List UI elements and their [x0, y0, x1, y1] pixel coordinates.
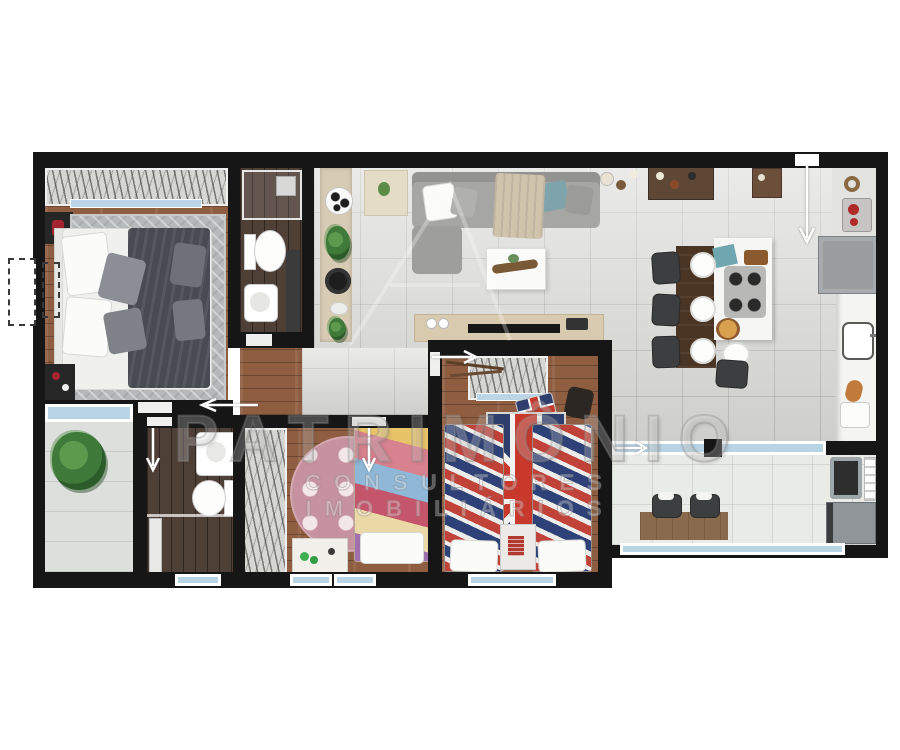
dining-chair-1 [651, 251, 681, 285]
window-boys [468, 574, 556, 586]
balcony-fern-plant [52, 432, 106, 490]
bed-pillow-gray-3 [169, 242, 207, 288]
window-girls-1 [290, 574, 332, 586]
wall-exterior-left [33, 152, 45, 588]
bench-white-decor [62, 384, 69, 391]
glassware-decor-3 [630, 170, 638, 178]
bathroom-top-vanity [286, 250, 300, 338]
door-arrow-entrance [798, 166, 816, 250]
sink-top-basin [250, 292, 270, 312]
wall-bedroom-bath-divider [228, 152, 240, 348]
floor-plan-canvas: PATRIMÔNIO CONSULTORES IMOBILIÁRIOS [0, 0, 900, 750]
girls-pillow [360, 532, 424, 564]
sideboard-decor-1 [656, 172, 664, 180]
coffee-machine-red-top [848, 204, 859, 215]
wall-exterior-top [33, 152, 888, 168]
watermark-logo-lines [330, 175, 550, 355]
watermark-line2: CONSULTORES IMOBILIÁRIOS [200, 470, 720, 522]
toy-green-1 [300, 552, 309, 561]
sofa-pillow-gray-2 [564, 184, 594, 215]
place-setting-1 [690, 252, 716, 278]
shower-column [149, 518, 162, 574]
toy-green-2 [310, 556, 318, 564]
bar-cart-decor [758, 174, 765, 181]
shower-head [276, 176, 296, 196]
sideboard-decor-2 [670, 180, 679, 189]
wall-bath-living-divider [302, 152, 314, 348]
window-girls-2 [334, 574, 376, 586]
ac-unit-dashed-outline-outer [8, 258, 36, 326]
fridge [818, 236, 878, 294]
pizza [716, 318, 740, 340]
tv-console-decor [566, 318, 588, 330]
wreath-decor [844, 176, 860, 192]
coffee-machine-red-base [850, 218, 858, 226]
cutting-board [744, 250, 768, 265]
watermark-line1: PATRIMÔNIO [150, 400, 770, 476]
boys-pillow-right [537, 539, 586, 573]
wall-service-right-stub [826, 441, 878, 455]
master-wardrobe-glass-door [70, 199, 202, 208]
window-service-bottom [620, 543, 845, 555]
toilet-top [254, 230, 286, 272]
window-bath-bottom [175, 574, 221, 586]
kitchen-sink [842, 322, 874, 360]
cooktop [724, 266, 766, 318]
ac-unit-dashed-outline-inner [42, 262, 60, 318]
washing-machine [826, 502, 876, 544]
place-setting-2 [690, 296, 716, 322]
door-gap-bath-top [246, 334, 272, 346]
boys-nightstand-book [508, 536, 524, 556]
dining-chair-3 [651, 336, 680, 369]
wall-exterior-right [876, 152, 888, 558]
entrance-door-gap [795, 154, 819, 166]
bed-pillow-gray-2 [103, 307, 148, 355]
coffee-machine [842, 198, 872, 232]
window-bedroom-balcony [45, 404, 133, 422]
paper-towel [840, 402, 870, 428]
bed-pillow-gray-4 [172, 299, 206, 342]
glassware-decor-1 [600, 172, 614, 186]
dining-chair-2 [651, 293, 681, 326]
place-setting-3 [690, 338, 716, 364]
boys-pillow-left [449, 539, 498, 573]
wall-balcony-right [133, 415, 147, 572]
dining-chair-4 [715, 359, 749, 389]
bar-cart [752, 168, 782, 198]
sideboard-decor-3 [688, 172, 696, 180]
toy-dark [328, 548, 335, 555]
bench-red-decor [52, 372, 60, 380]
laundry-sink [830, 457, 862, 499]
dining-sideboard [648, 164, 714, 200]
master-bench [45, 364, 75, 402]
drying-rack [864, 457, 876, 501]
glassware-decor-2 [616, 180, 626, 190]
